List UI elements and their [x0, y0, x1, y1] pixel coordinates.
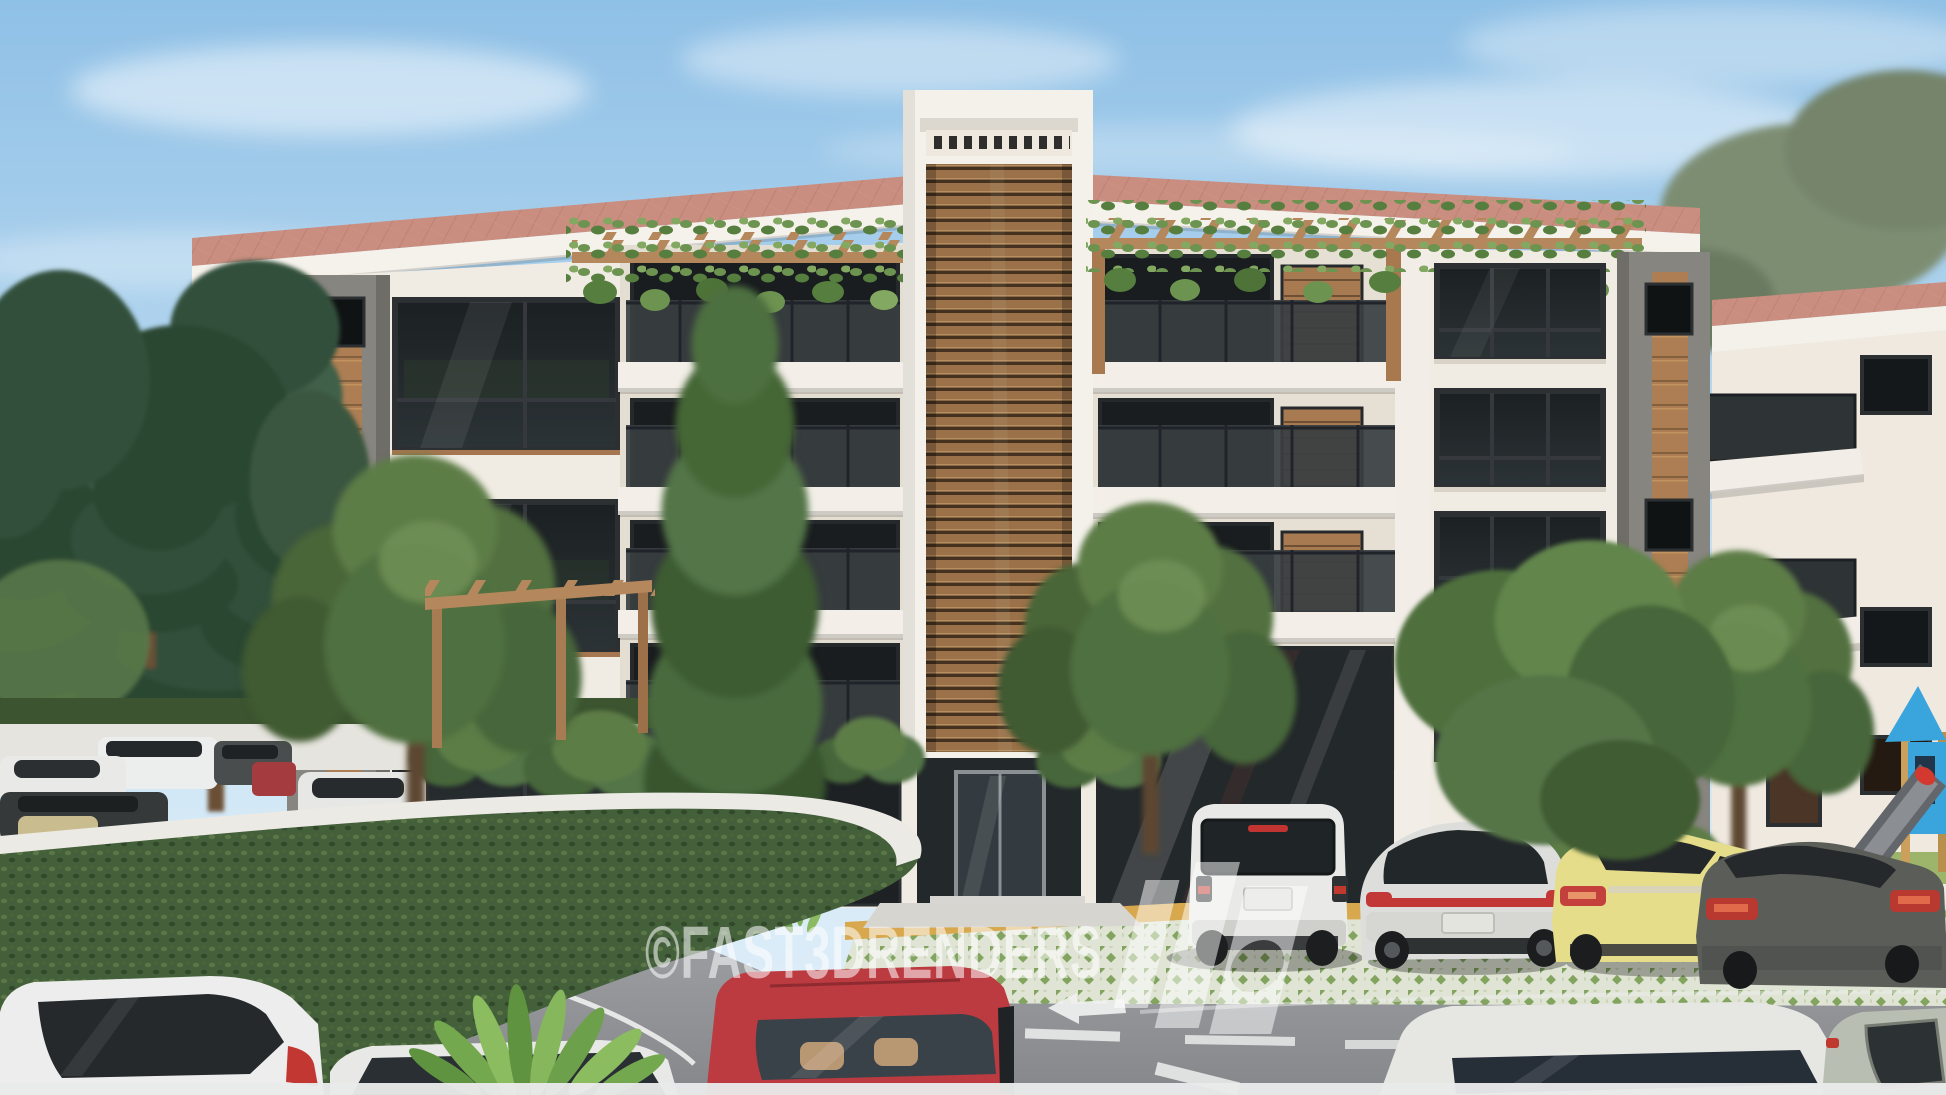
- tail-light-bar: [1372, 898, 1564, 907]
- balcony-railing: [1098, 300, 1425, 362]
- car-dark-gray-sedan: [1696, 842, 1946, 989]
- dentil-band: [928, 132, 1070, 155]
- car-white-suv-front-left: [0, 976, 324, 1095]
- balcony-parapet: [1093, 362, 1430, 392]
- foreground-white-strip: [0, 1083, 1946, 1095]
- balcony-railing: [1098, 425, 1425, 487]
- pergola-vines: [566, 212, 918, 284]
- watermark-text: ©FAST3DRENDERS: [645, 911, 1102, 994]
- car-white-sedan-front: [1380, 1002, 1842, 1095]
- scene: ©FAST3DRENDERS: [0, 0, 1946, 1095]
- window: [1434, 266, 1606, 364]
- render-canvas: ©FAST3DRENDERS: [0, 0, 1946, 1095]
- lane-dash: [1185, 1035, 1295, 1046]
- window: [392, 300, 621, 455]
- car-red-back: [252, 762, 296, 796]
- pergola-vines: [1086, 200, 1646, 272]
- brake-light: [1248, 825, 1288, 832]
- window: [1434, 391, 1606, 492]
